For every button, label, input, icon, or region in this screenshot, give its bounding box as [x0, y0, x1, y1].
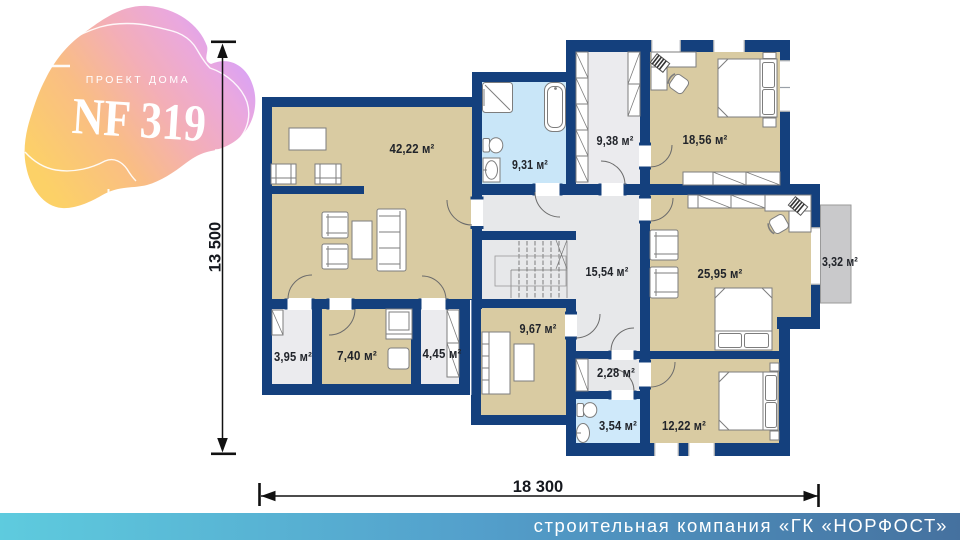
- svg-text:ПРОЕКТ ДОМА: ПРОЕКТ ДОМА: [86, 74, 191, 86]
- svg-text:строительная компания «ГК «НОР: строительная компания «ГК «НОРФОСТ»: [534, 515, 948, 536]
- svg-text:2,28 м²: 2,28 м²: [597, 365, 635, 380]
- svg-text:7,40 м²: 7,40 м²: [337, 348, 377, 363]
- svg-text:25,95 м²: 25,95 м²: [698, 266, 743, 281]
- svg-text:3,54 м²: 3,54 м²: [599, 418, 637, 433]
- svg-text:9,67 м²: 9,67 м²: [520, 321, 557, 336]
- svg-text:NF 319: NF 319: [70, 88, 207, 153]
- svg-text:9,38 м²: 9,38 м²: [597, 133, 634, 148]
- svg-text:3,95 м²: 3,95 м²: [274, 349, 312, 364]
- svg-text:4,45 м²: 4,45 м²: [423, 346, 462, 361]
- svg-text:42,22 м²: 42,22 м²: [390, 141, 435, 156]
- svg-text:18 300: 18 300: [513, 478, 563, 496]
- svg-text:12,22 м²: 12,22 м²: [662, 418, 706, 433]
- svg-text:15,54 м²: 15,54 м²: [586, 264, 629, 279]
- svg-text:18,56 м²: 18,56 м²: [683, 132, 728, 147]
- svg-text:13 500: 13 500: [207, 222, 225, 272]
- svg-text:3,32 м²: 3,32 м²: [822, 254, 858, 269]
- svg-text:9,31 м²: 9,31 м²: [512, 157, 548, 172]
